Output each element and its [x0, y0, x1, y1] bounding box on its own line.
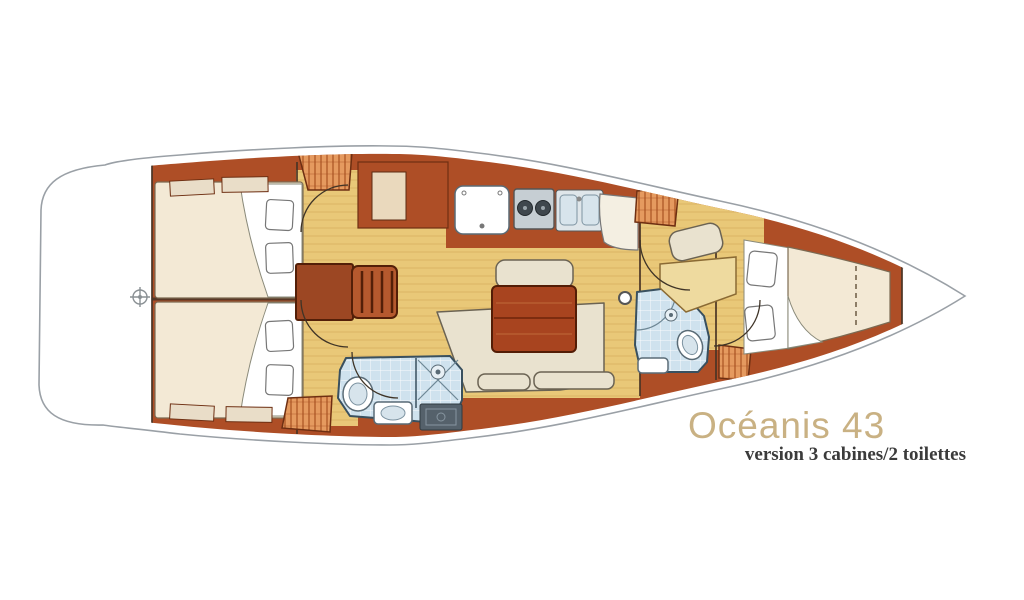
locker-shelf [170, 179, 215, 196]
aft-cabin-port [155, 177, 303, 298]
pillow [265, 365, 293, 396]
version-subtitle: version 3 cabines/2 toilettes [745, 444, 966, 465]
engine-box [296, 264, 353, 320]
salon-table [492, 286, 576, 352]
salon-bench [496, 260, 573, 288]
aft-cabin-starboard [155, 302, 303, 422]
companionway-steps [352, 266, 397, 318]
model-title: Océanis 43 [688, 405, 885, 446]
pillow [744, 305, 775, 342]
hanging-locker [298, 152, 352, 190]
hanging-locker [635, 187, 679, 226]
pillow [265, 320, 294, 351]
mast-post [619, 292, 631, 304]
hanging-locker [282, 396, 332, 432]
locker-shelf [222, 177, 268, 193]
galley-cabinet-door [372, 172, 406, 220]
settee-cushion [534, 372, 614, 389]
faucet [577, 197, 582, 202]
pillow [265, 199, 294, 230]
yacht-floorplan-page: Océanis 43 version 3 cabines/2 toilettes [0, 0, 1024, 600]
pillow [746, 251, 777, 288]
locker-shelf [170, 404, 215, 421]
locker-shelf [226, 407, 272, 423]
icebox-latch [480, 224, 485, 229]
companionway [296, 264, 397, 320]
settee-cushion [478, 374, 530, 390]
floorplan-drawing: Océanis 43 version 3 cabines/2 toilettes [0, 0, 1024, 600]
washbasin [638, 358, 668, 373]
pillow [265, 243, 293, 274]
bow-anchor-locker [902, 140, 982, 460]
galley-counter [600, 194, 639, 250]
